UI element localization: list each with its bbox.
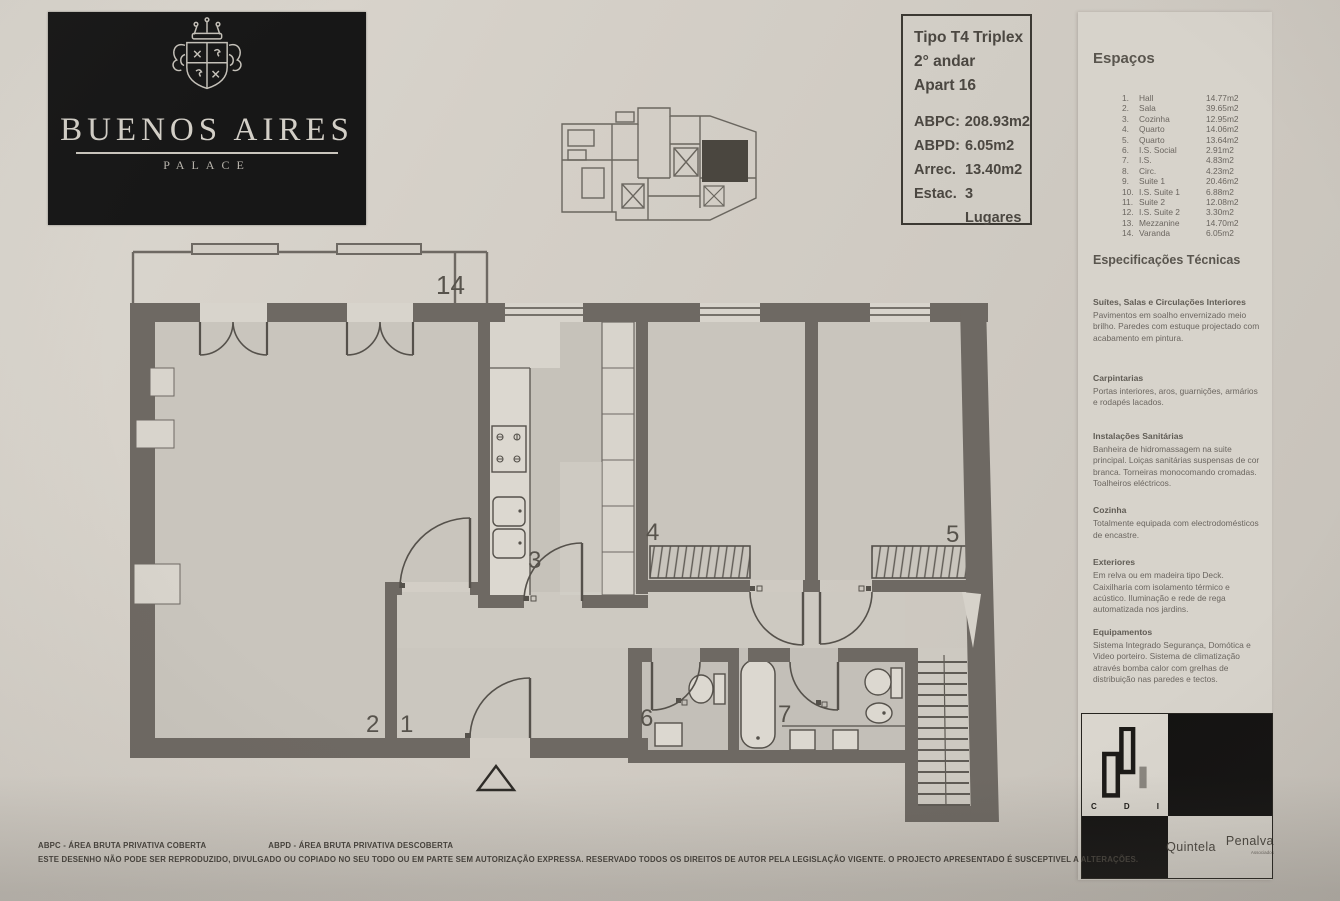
spec-section-interiores: Suítes, Salas e Circulações Interiores P… — [1093, 297, 1260, 344]
space-row: 9.Suite 120.46m2 — [1122, 176, 1258, 186]
room-label-14: 14 — [436, 270, 465, 300]
room-label-3: 3 — [528, 547, 541, 574]
space-row: 7.I.S.4.83m2 — [1122, 155, 1258, 165]
logo-title: BUENOS AIRES — [60, 112, 354, 149]
crest-icon — [152, 12, 262, 108]
space-row: 5.Quarto13.64m2 — [1122, 135, 1258, 145]
metric-abpc: ABPC: 208.93m2 — [914, 110, 1030, 134]
space-row: 1.Hall14.77m2 — [1122, 93, 1258, 103]
spec-section-cozinha: Cozinha Totalmente equipada com electrod… — [1093, 505, 1260, 541]
cooktop — [492, 426, 526, 472]
unit-floor: 2° andar — [914, 50, 1030, 74]
room-label-2: 2 — [366, 711, 379, 738]
kitchen-cabinets — [602, 322, 634, 595]
spaces-list: 1.Hall14.77m2 2.Sala39.65m2 3.Cozinha12.… — [1122, 93, 1258, 239]
washbasin — [655, 723, 682, 746]
window-kitchen — [505, 303, 583, 322]
space-row: 8.Circ.4.23m2 — [1122, 166, 1258, 176]
balcony-varanda — [133, 244, 487, 303]
wardrobe-quarto5 — [872, 546, 968, 578]
space-row: 2.Sala39.65m2 — [1122, 103, 1258, 113]
space-row: 4.Quarto14.06m2 — [1122, 124, 1258, 134]
space-row: 3.Cozinha12.95m2 — [1122, 114, 1258, 124]
specs-title: Especificações Técnicas — [1093, 253, 1272, 267]
legend-disclaimer: ESTE DESENHO NÃO PODE SER REPRODUZIDO, D… — [38, 855, 938, 864]
room-label-7: 7 — [778, 701, 791, 728]
room-label-5: 5 — [946, 521, 959, 548]
space-row: 11.Suite 212.08m2 — [1122, 197, 1258, 207]
quintela-penalva-logo: Quintela Penalva Associados — [1168, 816, 1272, 878]
footer-legend: ABPC - ÁREA BRUTA PRIVATIVA COBERTA ABPD… — [38, 841, 938, 864]
key-plan — [552, 98, 766, 232]
spec-section-sanitarias: Instalações Sanitárias Banheira de hidro… — [1093, 431, 1260, 490]
corridor-circ — [397, 592, 905, 648]
room-label-4: 4 — [646, 519, 659, 546]
logo-rule — [76, 152, 338, 154]
spec-section-equipamentos: Equipamentos Sistema Integrado Segurança… — [1093, 627, 1260, 686]
developer-logo: BUENOS AIRES PALACE — [48, 12, 366, 225]
spec-section-exteriores: Exteriores Em relva ou em madeira tipo D… — [1093, 557, 1260, 616]
metric-abpd: ABPD: 6.05m2 — [914, 134, 1030, 158]
cdi-mark-icon — [1089, 727, 1161, 799]
window-quarto5 — [870, 303, 930, 322]
room-label-1: 1 — [400, 711, 413, 738]
bathtub — [741, 660, 775, 748]
penalva-word: Penalva — [1226, 836, 1274, 847]
cdi-letters: C D I — [1091, 802, 1159, 811]
legend-abpd: ABPD - ÁREA BRUTA PRIVATIVA DESCOBERTA — [268, 841, 453, 850]
toilet — [865, 669, 891, 695]
room-quarto5 — [818, 322, 967, 580]
space-row: 10.I.S. Suite 16.88m2 — [1122, 187, 1258, 197]
room-label-6: 6 — [640, 705, 653, 732]
unit-info-box: Tipo T4 Triplex 2° andar Apart 16 ABPC: … — [901, 14, 1032, 225]
wardrobe-quarto4 — [650, 546, 750, 578]
space-row: 14.Varanda6.05m2 — [1122, 228, 1258, 238]
legend-abpc: ABPC - ÁREA BRUTA PRIVATIVA COBERTA — [38, 841, 206, 850]
cdi-logo: C D I — [1082, 714, 1168, 816]
metric-arrec: Arrec. 13.40m2 — [914, 158, 1030, 182]
brand-block: C D I Quintela Penalva Associados — [1082, 714, 1272, 878]
logo-subtitle: PALACE — [163, 158, 251, 173]
space-row: 13.Mezzanine14.70m2 — [1122, 218, 1258, 228]
window-quarto4 — [700, 303, 760, 322]
washbasin — [833, 730, 858, 750]
spec-section-carpintarias: Carpintarias Portas interiores, aros, gu… — [1093, 373, 1260, 409]
washbasin — [790, 730, 815, 750]
highlighted-unit — [702, 140, 748, 182]
scanned-plan-sheet: { "logo": { "title": "BUENOS AIRES", "su… — [0, 0, 1340, 901]
spaces-title: Espaços — [1093, 50, 1272, 67]
space-row: 12.I.S. Suite 23.30m2 — [1122, 207, 1258, 217]
space-row: 6.I.S. Social2.91m2 — [1122, 145, 1258, 155]
room-quarto4 — [648, 322, 805, 580]
brand-black-bottom — [1082, 816, 1168, 878]
quintela-word: Quintela — [1166, 840, 1216, 854]
penalva-sub: Associados — [1251, 847, 1274, 858]
unit-apartment: Apart 16 — [914, 74, 1030, 98]
entrance-arrow — [478, 766, 514, 790]
bidet — [866, 703, 892, 723]
floor-plan: 14 — [118, 238, 1016, 838]
brand-black-top — [1168, 714, 1272, 816]
unit-type: Tipo T4 Triplex — [914, 26, 1030, 50]
unit-metrics: ABPC: 208.93m2 ABPD: 6.05m2 Arrec. 13.40… — [914, 110, 1030, 230]
metric-estac: Estac. 3 Lugares — [914, 182, 1030, 230]
